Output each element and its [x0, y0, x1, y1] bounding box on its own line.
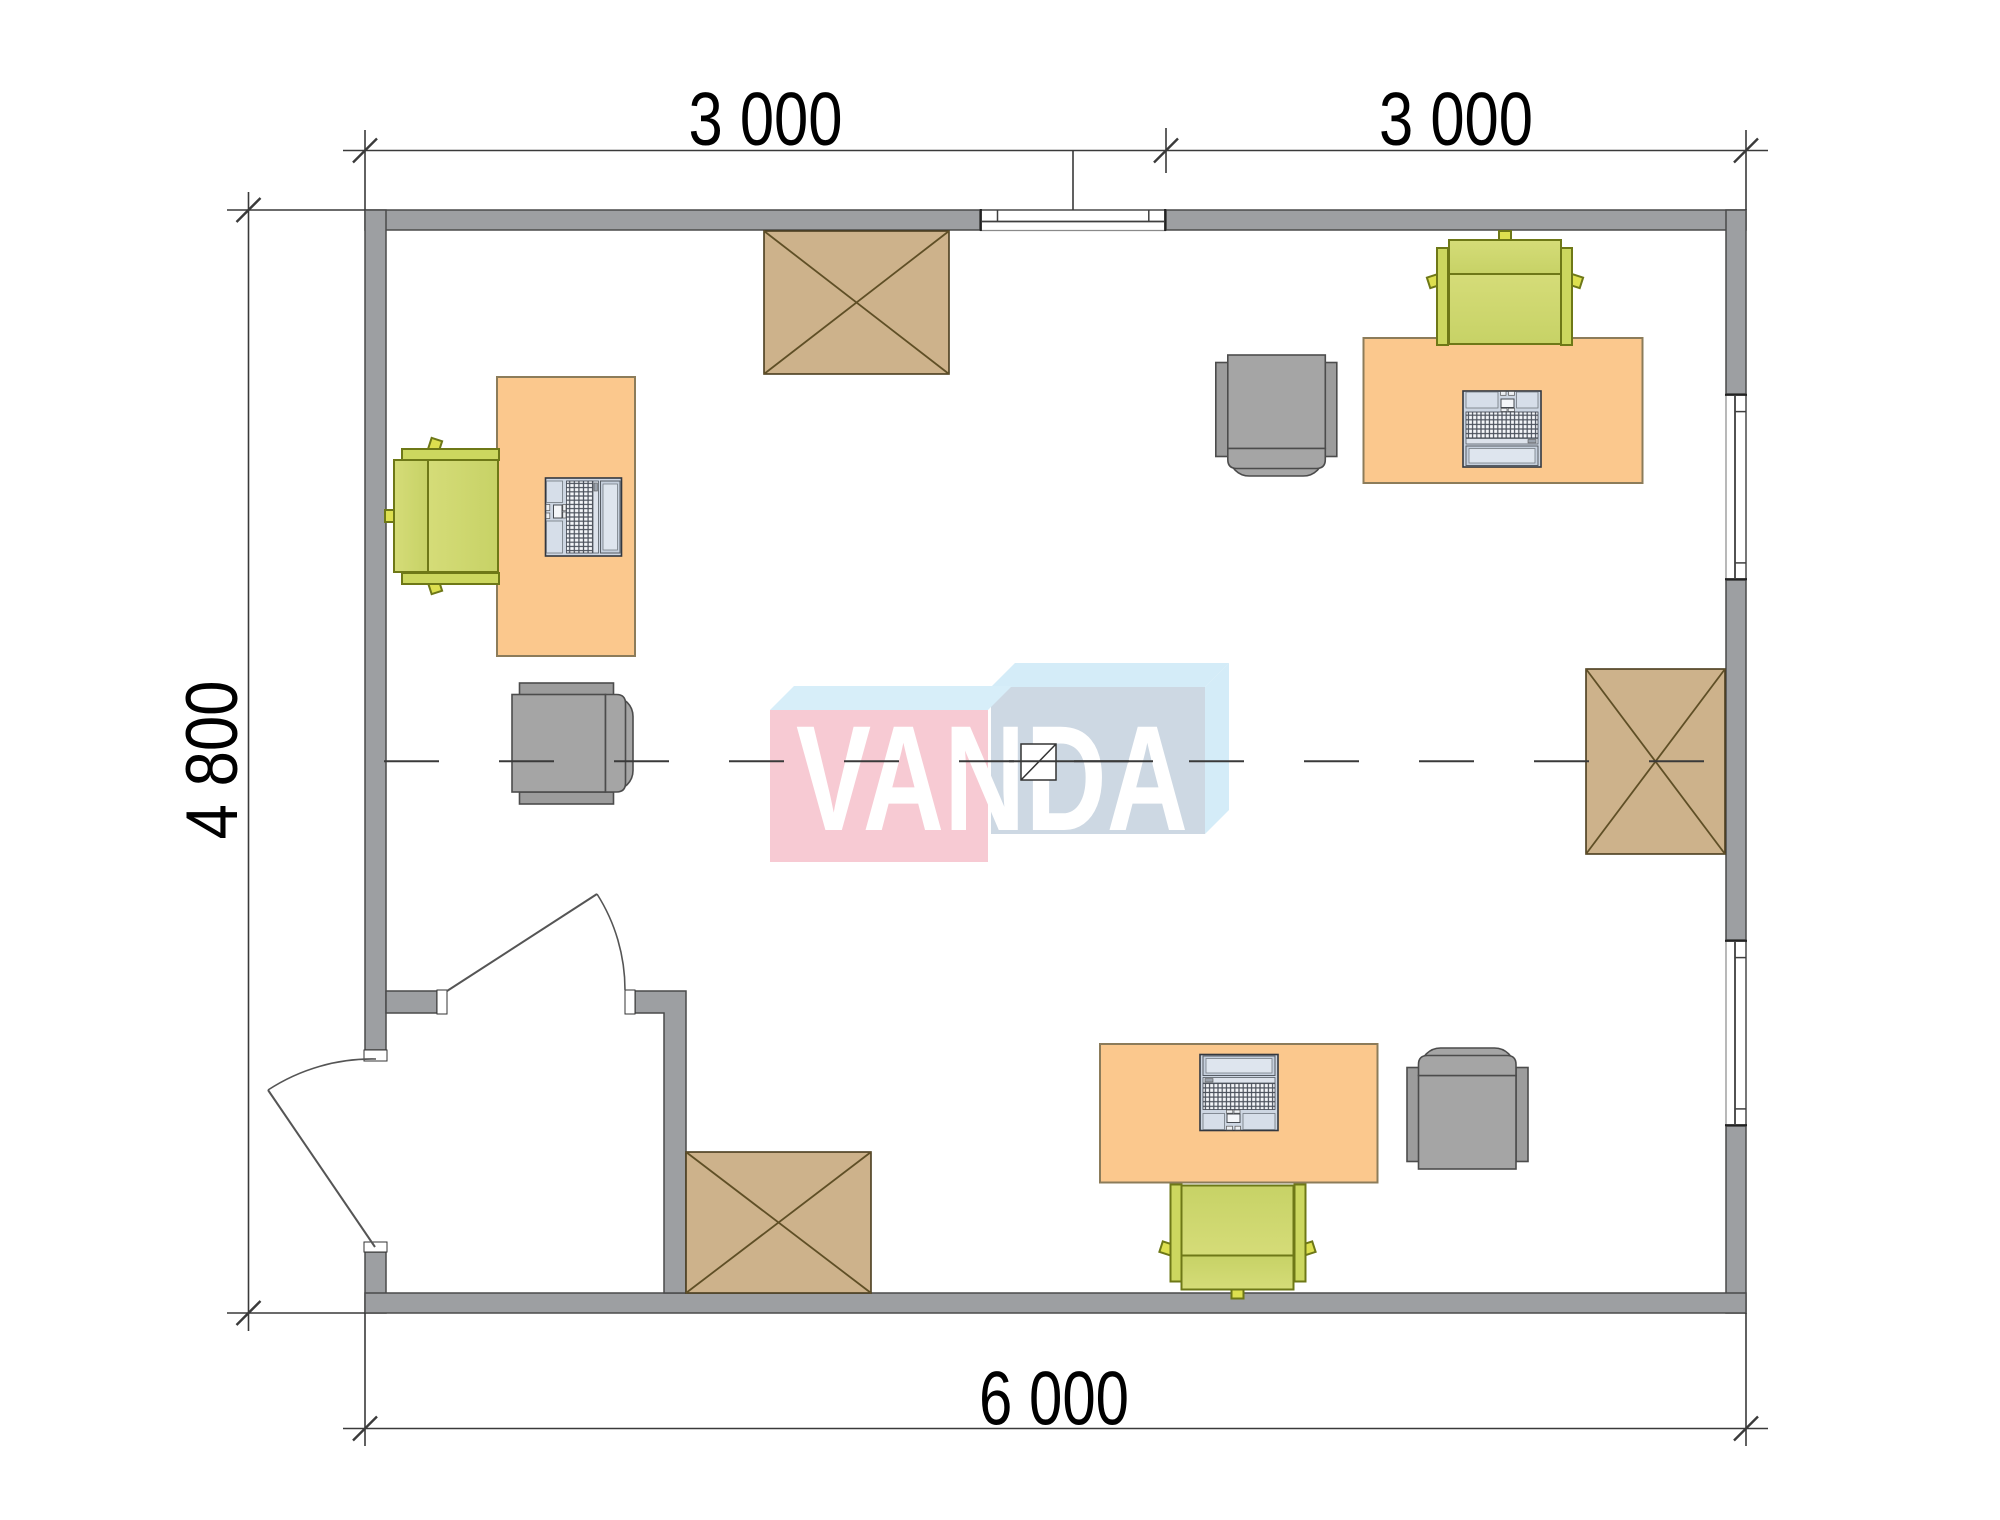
svg-text:4 800: 4 800: [172, 681, 253, 840]
svg-text:3 000: 3 000: [689, 77, 843, 161]
svg-text:3 000: 3 000: [1379, 77, 1533, 161]
svg-text:6 000: 6 000: [979, 1357, 1129, 1442]
svg-text:VANDA: VANDA: [796, 694, 1188, 862]
